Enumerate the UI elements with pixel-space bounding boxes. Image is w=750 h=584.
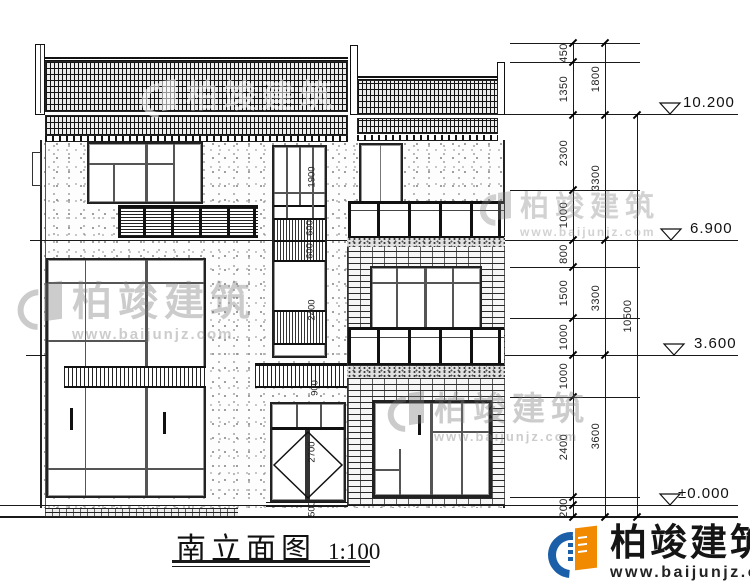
window-mullion xyxy=(286,205,288,218)
level-line-10200 xyxy=(505,114,738,115)
window-mullion xyxy=(399,449,401,495)
window-mullion xyxy=(48,340,145,342)
elevation-marker-icon xyxy=(658,102,682,115)
window-mullion xyxy=(296,404,298,427)
window-mullion xyxy=(461,403,463,495)
window-mullion xyxy=(299,147,301,205)
window-mullion xyxy=(173,144,175,202)
dim-label: 200 xyxy=(558,498,570,518)
window-mullion xyxy=(380,145,381,203)
dim-label: 3600 xyxy=(590,423,602,449)
dim-label: 1800 xyxy=(590,66,602,92)
elevation-value: ±0.000 xyxy=(678,485,730,502)
inner-dim-label: 2400 xyxy=(307,299,318,320)
balcony-railing-1f-right xyxy=(348,327,504,365)
elevation-value: 6.900 xyxy=(690,220,733,237)
railing-post xyxy=(227,208,230,236)
ext-line xyxy=(510,497,640,498)
window-mullion xyxy=(452,268,454,328)
inner-dim-label: 600 xyxy=(305,220,316,236)
window-1f-right xyxy=(370,266,482,330)
dim-label: 3300 xyxy=(590,285,602,311)
inner-dim-label: 900 xyxy=(310,380,321,396)
watermark-brand: 柏竣建筑 xyxy=(520,192,660,221)
window-mullion xyxy=(312,205,314,218)
door-handle xyxy=(70,408,73,430)
chimney xyxy=(35,44,45,115)
railing-post xyxy=(408,330,411,363)
window-2f-left xyxy=(87,142,203,204)
window-mullion xyxy=(274,240,325,242)
logo-icon xyxy=(548,526,600,580)
roof-tiles-lower xyxy=(45,115,348,136)
right-roof xyxy=(357,76,498,141)
balcony-door-2f-right xyxy=(359,143,403,205)
roof-post-right xyxy=(497,62,505,115)
window-mullion xyxy=(430,431,489,433)
window-mullion xyxy=(430,403,433,495)
logo-brand-text: 柏竣建筑 xyxy=(610,524,750,561)
ext-line xyxy=(510,190,640,191)
window-gf-right xyxy=(372,400,492,498)
balcony-louver-2f-left xyxy=(118,205,258,238)
wall-return xyxy=(32,152,41,186)
elevation-drawing-canvas: 450 1350 2300 1000 800 1500 1000 1000 24… xyxy=(0,0,750,584)
railing-post xyxy=(377,330,380,363)
railing-post xyxy=(439,330,442,363)
inner-dim-label: 500 xyxy=(307,501,318,517)
inner-dim-label: 600 xyxy=(305,243,316,259)
ext-line xyxy=(510,43,640,44)
window-mullion xyxy=(396,268,398,328)
door-handle xyxy=(163,412,166,434)
dim-label: 1000 xyxy=(558,324,570,350)
window-mullion xyxy=(89,163,173,165)
door-handle xyxy=(418,415,421,435)
window-mullion xyxy=(48,282,204,284)
inner-dim-label: 1900 xyxy=(307,166,318,187)
railing-post xyxy=(348,330,351,363)
railing-post xyxy=(408,204,411,236)
logo-building-shape xyxy=(575,526,597,571)
dim-label: 1350 xyxy=(558,76,570,102)
window-mullion xyxy=(375,469,399,471)
railing-post xyxy=(498,330,501,363)
watermark-url: www.baijunjz.com xyxy=(520,225,660,239)
roof-tiles xyxy=(45,61,348,112)
left-roof xyxy=(45,57,348,141)
balcony-slat-band-center xyxy=(255,363,347,388)
dim-label: 1000 xyxy=(558,202,570,228)
dim-label: 800 xyxy=(558,244,570,264)
railing-post xyxy=(470,204,473,236)
title-underline-thin xyxy=(172,566,370,567)
elevation-marker-icon xyxy=(659,228,683,241)
dim-label: 2400 xyxy=(558,434,570,460)
railing-post xyxy=(439,204,442,236)
window-mullion xyxy=(274,192,325,194)
window-mullion xyxy=(113,163,115,202)
railing-glass-line xyxy=(348,337,504,338)
balcony-railing-2f-right xyxy=(348,201,504,238)
dim-label: 10500 xyxy=(622,299,634,332)
roof-tiles xyxy=(357,80,498,115)
ext-line xyxy=(510,267,640,268)
railing-post xyxy=(253,208,256,236)
plinth-band xyxy=(45,508,238,517)
stair-window xyxy=(272,145,327,358)
dim-label: 1000 xyxy=(558,363,570,389)
texture-band-lower xyxy=(347,366,505,378)
roof-tiles-lower xyxy=(357,118,498,134)
fascia-line xyxy=(45,141,348,142)
inner-dim-label: 2700 xyxy=(307,441,318,462)
window-mullion xyxy=(145,144,148,202)
dim-label: 1500 xyxy=(558,280,570,306)
logo-url-text: www.baijunjz.com xyxy=(610,564,750,582)
logo-squares-shape xyxy=(568,534,573,561)
window-mullion xyxy=(274,205,325,207)
window-mullion xyxy=(320,404,322,427)
window-mullion xyxy=(286,147,288,205)
title-underline-thick xyxy=(172,560,370,563)
level-line-3600-stub xyxy=(26,355,48,356)
level-line-3600 xyxy=(505,355,738,356)
railing-post xyxy=(470,330,473,363)
railing-post xyxy=(171,208,174,236)
elevation-value: 3.600 xyxy=(694,335,737,352)
railing-post xyxy=(118,208,121,236)
fascia-line xyxy=(357,140,498,141)
window-mullion xyxy=(424,268,427,328)
dimension-chain-line xyxy=(637,114,638,517)
watermark: 柏竣建筑 www.baijunjz.com xyxy=(480,192,660,239)
window-mullion xyxy=(48,468,204,470)
balcony-slat-band-left xyxy=(64,366,206,388)
railing-post xyxy=(143,208,146,236)
texture-band-upper xyxy=(347,237,505,247)
dim-label: 3300 xyxy=(590,165,602,191)
railing-post xyxy=(498,204,501,236)
elevation-marker-icon xyxy=(662,343,686,356)
ext-line xyxy=(510,318,640,319)
dim-label: 450 xyxy=(558,43,570,63)
elevation-value: 10.200 xyxy=(683,94,735,111)
railing-post xyxy=(377,204,380,236)
railing-glass-line xyxy=(348,210,504,211)
ext-line xyxy=(510,62,640,63)
chimney-inner-line xyxy=(40,45,41,113)
ext-line xyxy=(510,397,640,398)
dim-label: 2300 xyxy=(558,140,570,166)
railing-post xyxy=(348,204,351,236)
site-logo: 柏竣建筑 www.baijunjz.com xyxy=(548,524,750,582)
level-line-zero xyxy=(0,505,738,506)
railing-post xyxy=(199,208,202,236)
